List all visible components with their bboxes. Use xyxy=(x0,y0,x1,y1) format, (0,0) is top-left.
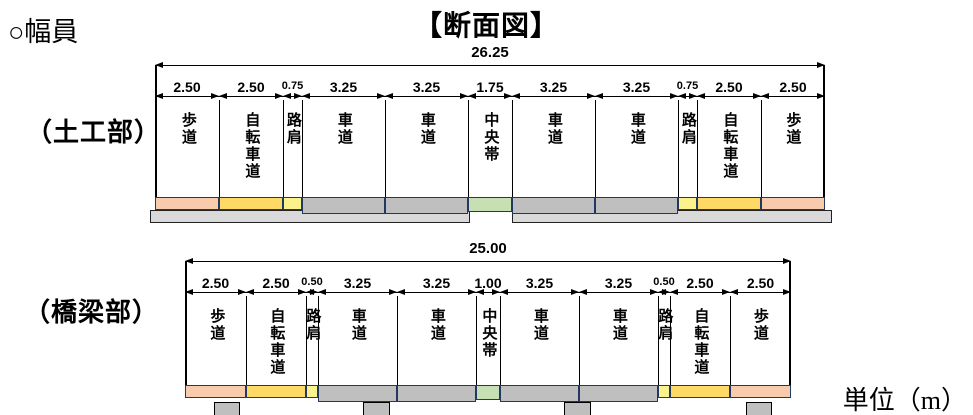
dimension-value: 3.25 xyxy=(344,276,371,290)
pavement-shoulder xyxy=(283,197,302,210)
lane-label: 車道 xyxy=(532,308,548,342)
dimension-sidewalk: 2.50 xyxy=(185,272,246,296)
dimension-bicycle: 2.50 xyxy=(670,272,730,296)
pavement-sidewalk xyxy=(155,197,219,210)
pavement-bicycle xyxy=(219,197,283,210)
pavement-shoulder xyxy=(306,385,318,398)
dimension-shoulder: 0.75 xyxy=(283,76,302,100)
lane-cells-row: 歩道自転車道路肩車道車道中央帯車道車道路肩自転車道歩道 xyxy=(155,100,825,197)
pavement-roadway xyxy=(579,385,658,402)
pavement-roadway xyxy=(318,385,397,402)
dimension-arrow xyxy=(476,292,500,293)
lane-cell-shoulder: 路肩 xyxy=(283,100,302,197)
lane-label: 車道 xyxy=(611,308,627,342)
dimension-shoulder: 0.50 xyxy=(306,272,318,296)
width-heading: ○幅員 xyxy=(8,10,78,49)
pavement-bicycle xyxy=(697,197,761,210)
dimension-value: 1.75 xyxy=(476,80,503,94)
dimension-arrow xyxy=(500,292,579,293)
dimension-arrow xyxy=(468,96,512,97)
lane-label: 路肩 xyxy=(680,112,696,146)
dimension-sidewalk: 2.50 xyxy=(730,272,791,296)
lane-cell-median: 中央帯 xyxy=(476,296,500,385)
dimension-median: 1.00 xyxy=(476,272,500,296)
dimension-roadway: 3.25 xyxy=(579,272,658,296)
dimension-arrow xyxy=(579,292,658,293)
pavement-roadway xyxy=(595,197,678,214)
dimension-arrow xyxy=(512,96,595,97)
lane-cell-sidewalk: 歩道 xyxy=(155,100,219,197)
pavement-shoulder xyxy=(678,197,697,210)
lane-label: 自転車道 xyxy=(269,308,285,376)
bridge-cross-section: 25.00 2.502.500.503.253.251.003.253.250.… xyxy=(185,240,791,402)
dimension-value: 2.50 xyxy=(202,276,229,290)
lane-label: 車道 xyxy=(336,112,352,146)
lane-cell-bicycle: 自転車道 xyxy=(219,100,283,197)
pavement-roadway xyxy=(512,197,595,214)
pavement-bicycle xyxy=(246,385,306,398)
pavement-sidewalk xyxy=(761,197,825,210)
lane-cell-bicycle: 自転車道 xyxy=(670,296,730,385)
lane-cell-roadway: 車道 xyxy=(302,100,385,197)
lane-label: 自転車道 xyxy=(722,112,738,180)
earthwork-cross-section: 26.25 2.502.500.753.253.251.753.253.250.… xyxy=(155,44,825,214)
total-dimension-arrow xyxy=(155,62,825,70)
dimension-arrow xyxy=(219,96,283,97)
dimension-arrow xyxy=(318,292,397,293)
lane-label: 車道 xyxy=(350,308,366,342)
dimension-arrow xyxy=(595,96,678,97)
dimension-arrow xyxy=(246,292,306,293)
total-width-value: 26.25 xyxy=(155,44,825,62)
pavement-roadway xyxy=(500,385,579,402)
total-dimension-arrow xyxy=(185,258,791,266)
lane-cell-shoulder: 路肩 xyxy=(678,100,697,197)
dimension-value: 3.25 xyxy=(330,80,357,94)
dimension-value: 3.25 xyxy=(605,276,632,290)
dimension-arrow xyxy=(678,96,697,97)
dimension-arrow xyxy=(658,292,670,293)
pavement-sidewalk xyxy=(730,385,791,398)
dimension-value: 3.25 xyxy=(423,276,450,290)
dimension-roadway: 3.25 xyxy=(318,272,397,296)
dimension-value: 2.50 xyxy=(237,80,264,94)
pavement-shoulder xyxy=(658,385,670,398)
dimension-arrow xyxy=(697,96,761,97)
dimension-roadway: 3.25 xyxy=(385,76,468,100)
lane-cell-roadway: 車道 xyxy=(595,100,678,197)
lane-label: 歩道 xyxy=(752,308,768,342)
dimension-value: 2.50 xyxy=(779,80,806,94)
pavement-sidewalk xyxy=(185,385,246,398)
dimension-roadway: 3.25 xyxy=(500,272,579,296)
lane-label: 歩道 xyxy=(785,112,801,146)
section-name-bridge: （橋梁部） xyxy=(24,292,159,329)
dimension-arrow xyxy=(155,96,219,97)
dimension-value: 2.50 xyxy=(173,80,200,94)
pavement-strip-row xyxy=(185,385,791,402)
lane-cell-bicycle: 自転車道 xyxy=(697,100,761,197)
dimension-bicycle: 2.50 xyxy=(697,76,761,100)
lane-label: 自転車道 xyxy=(693,308,709,376)
lane-cells-row: 歩道自転車道路肩車道車道中央帯車道車道路肩自転車道歩道 xyxy=(185,296,791,385)
dimension-arrow xyxy=(670,292,730,293)
dimension-shoulder: 0.50 xyxy=(658,272,670,296)
unit-label: 単位（m） xyxy=(843,380,967,415)
lane-label: 中央帯 xyxy=(483,112,499,163)
dimension-value: 2.50 xyxy=(686,276,713,290)
lane-cell-sidewalk: 歩道 xyxy=(730,296,791,385)
dimension-value: 2.50 xyxy=(747,276,774,290)
bridge-girder xyxy=(746,402,772,415)
lane-cell-sidewalk: 歩道 xyxy=(185,296,246,385)
segment-dimensions-row: 2.502.500.753.253.251.753.253.250.752.50… xyxy=(155,76,825,100)
dimension-arrow xyxy=(306,292,318,293)
dimension-bicycle: 2.50 xyxy=(246,272,306,296)
dimension-arrow xyxy=(397,292,476,293)
lane-cell-shoulder: 路肩 xyxy=(306,296,318,385)
lane-label: 車道 xyxy=(429,308,445,342)
dimension-value: 0.75 xyxy=(282,81,303,92)
lane-cell-sidewalk: 歩道 xyxy=(761,100,825,197)
lane-label: 歩道 xyxy=(180,112,196,146)
lane-cell-roadway: 車道 xyxy=(512,100,595,197)
dimension-arrow xyxy=(302,96,385,97)
dimension-value: 3.25 xyxy=(526,276,553,290)
pavement-median xyxy=(468,197,512,212)
lane-label: 歩道 xyxy=(209,308,225,342)
dimension-value: 3.25 xyxy=(623,80,650,94)
pavement-roadway xyxy=(302,197,385,214)
lane-label: 中央帯 xyxy=(481,308,497,359)
section-name-earthwork: （土工部） xyxy=(26,112,161,149)
lane-cell-roadway: 車道 xyxy=(385,100,468,197)
dimension-roadway: 3.25 xyxy=(397,272,476,296)
bridge-girder xyxy=(564,402,591,415)
lane-label: 車道 xyxy=(629,112,645,146)
dimension-sidewalk: 2.50 xyxy=(155,76,219,100)
pavement-median xyxy=(476,385,500,400)
cross-section-page: 【断面図】 ○幅員 （土工部） （橋梁部） 単位（m） 26.25 2.502.… xyxy=(0,0,973,415)
lane-cell-roadway: 車道 xyxy=(579,296,658,385)
lane-cell-median: 中央帯 xyxy=(468,100,512,197)
lane-label: 自転車道 xyxy=(244,112,260,180)
lane-cell-shoulder: 路肩 xyxy=(658,296,670,385)
dimension-sidewalk: 2.50 xyxy=(761,76,825,100)
pavement-roadway xyxy=(385,197,468,214)
page-title: 【断面図】 xyxy=(0,4,973,44)
bridge-girder xyxy=(363,402,390,415)
lane-label: 車道 xyxy=(546,112,562,146)
dimension-arrow xyxy=(385,96,468,97)
dimension-arrow xyxy=(761,96,825,97)
lane-cell-roadway: 車道 xyxy=(318,296,397,385)
pavement-strip-row xyxy=(155,197,825,214)
dimension-roadway: 3.25 xyxy=(595,76,678,100)
dimension-value: 3.25 xyxy=(540,80,567,94)
dimension-value: 0.75 xyxy=(677,81,698,92)
dimension-arrow xyxy=(730,292,791,293)
dimension-arrow xyxy=(283,96,302,97)
dimension-roadway: 3.25 xyxy=(512,76,595,100)
lane-cell-bicycle: 自転車道 xyxy=(246,296,306,385)
lane-label: 路肩 xyxy=(285,112,301,146)
dimension-value: 2.50 xyxy=(262,276,289,290)
total-width-value: 25.00 xyxy=(185,240,791,258)
dimension-roadway: 3.25 xyxy=(302,76,385,100)
dimension-median: 1.75 xyxy=(468,76,512,100)
pavement-bicycle xyxy=(670,385,730,398)
pavement-roadway xyxy=(397,385,476,402)
segment-dimensions-row: 2.502.500.503.253.251.003.253.250.502.50… xyxy=(185,272,791,296)
dimension-value: 3.25 xyxy=(413,80,440,94)
dimension-shoulder: 0.75 xyxy=(678,76,697,100)
lane-cell-roadway: 車道 xyxy=(500,296,579,385)
lane-label: 車道 xyxy=(419,112,435,146)
bridge-girder xyxy=(214,402,240,415)
dimension-arrow xyxy=(185,292,246,293)
lane-cell-roadway: 車道 xyxy=(397,296,476,385)
dimension-bicycle: 2.50 xyxy=(219,76,283,100)
dimension-value: 2.50 xyxy=(715,80,742,94)
